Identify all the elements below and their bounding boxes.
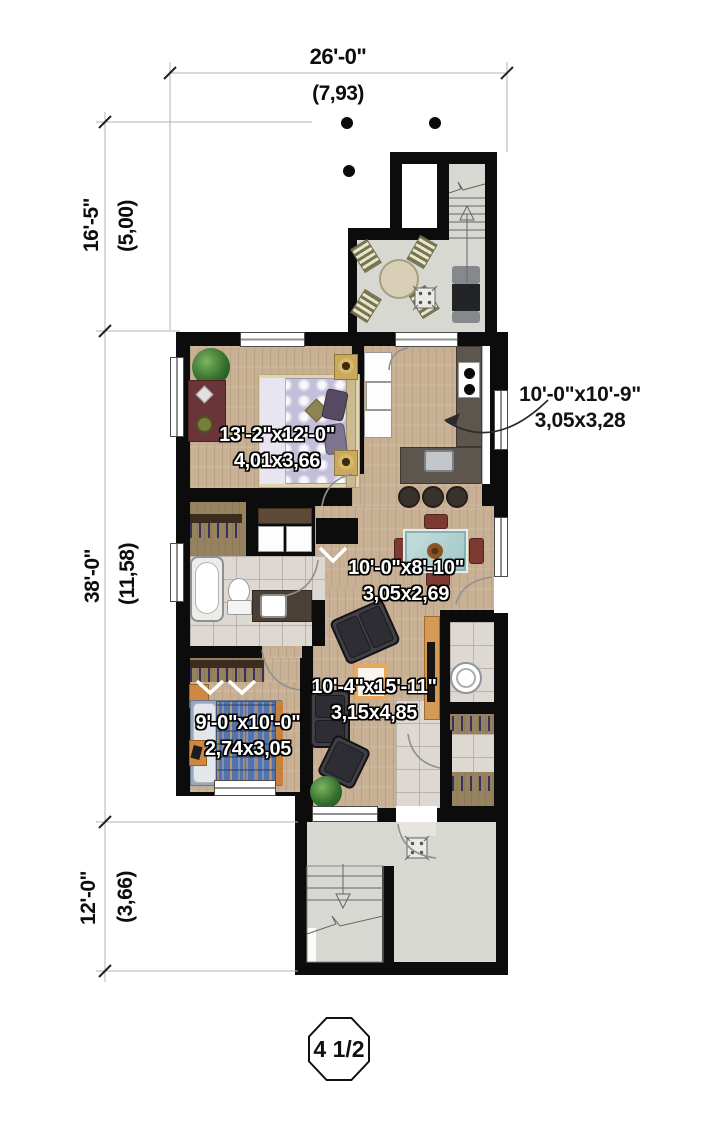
bedroom2-floor [264, 658, 300, 682]
room-size-metric: 4,01x3,66 [219, 448, 335, 474]
toilet-tank [227, 600, 252, 615]
front-door [396, 806, 437, 822]
window [395, 332, 458, 347]
door-landing [398, 822, 436, 836]
linen-counter [258, 508, 312, 524]
window [214, 780, 276, 796]
room-size-imperial: 10'-4"x15'-11" [311, 674, 436, 700]
room-label-kitchen: 10'-0"x10'-9" 3,05x3,28 [519, 382, 641, 434]
interior-wall [312, 600, 325, 646]
kitchen-cabinet [364, 410, 392, 438]
dining-chair [424, 514, 448, 529]
desk-plate [196, 416, 213, 433]
bbq-grill [452, 311, 480, 323]
room-label-living: 10'-4"x15'-11" 3,15x4,85 [311, 674, 436, 726]
bar-stool [422, 486, 444, 508]
room-size-metric: 3,05x2,69 [348, 581, 464, 607]
dim-left-middle-imperial: 38'-0" [81, 549, 105, 603]
bbq-grill [452, 284, 480, 311]
interior-wall [246, 502, 258, 556]
wall [390, 152, 402, 240]
deck-wall [295, 962, 508, 975]
window [170, 357, 184, 437]
kitchen-cabinet [366, 382, 392, 410]
room-size-metric: 3,05x3,28 [519, 408, 641, 434]
wall [485, 152, 497, 333]
unit-count-badge: 4 1/2 [313, 1036, 364, 1063]
floor-plan-canvas: 26'-0" (7,93) 16'-5" (5,00) 38'-0" (11,5… [0, 0, 720, 1131]
room-size-imperial: 10'-0"x8'-10" [348, 555, 464, 581]
burner [464, 368, 475, 379]
side-door [494, 577, 508, 613]
room-label-dining: 10'-0"x8'-10" 3,05x2,69 [348, 555, 464, 607]
porch-post-dot [429, 117, 441, 129]
dining-chair [469, 538, 484, 564]
window [240, 332, 305, 347]
bbq-grill [452, 266, 480, 284]
closet-rod [190, 660, 264, 668]
lamp [338, 454, 354, 470]
interior-wall [176, 646, 262, 658]
closet-hangers [452, 776, 492, 791]
bar-stool [446, 486, 468, 508]
burner [464, 384, 475, 395]
room-size-metric: 3,15x4,85 [311, 700, 436, 726]
wall [348, 228, 357, 333]
linen-cabinet [286, 526, 312, 552]
front-deck-floor [307, 822, 496, 962]
window [170, 543, 184, 602]
window [494, 517, 508, 577]
wall [390, 152, 497, 164]
interior-wall [302, 646, 313, 658]
dim-left-bottom-imperial: 12'-0" [77, 871, 101, 925]
dim-left-top-metric: (5,00) [115, 200, 139, 252]
window [494, 390, 508, 450]
door-opening [312, 556, 325, 600]
interior-wall [190, 488, 352, 502]
closet-hangers [190, 668, 264, 682]
washer-drum [456, 668, 476, 688]
counter-edge [482, 346, 490, 484]
interior-wall [440, 730, 452, 822]
room-size-metric: 2,74x3,05 [196, 736, 301, 762]
room-size-imperial: 13'-2"x12'-0" [219, 422, 335, 448]
deck-wall [295, 822, 307, 975]
fridge [364, 352, 392, 382]
closet-hangers [190, 523, 242, 538]
bar-stool [398, 486, 420, 508]
entry-hall-floor [450, 734, 494, 772]
stair-wall [382, 866, 394, 962]
room-size-imperial: 9'-0"x10'-0" [196, 710, 301, 736]
interior-wall [316, 518, 358, 544]
room-size-imperial: 10'-0"x10'-9" [519, 382, 641, 408]
deck-wall [496, 822, 508, 975]
closet-hangers [452, 716, 492, 731]
dim-top-imperial: 26'-0" [310, 44, 367, 70]
dim-left-bottom-metric: (3,66) [114, 871, 138, 923]
closet-rod [190, 514, 242, 523]
porch-post-dot [341, 117, 353, 129]
bathtub-inner [195, 562, 219, 614]
room-label-master-bedroom: 13'-2"x12'-0" 4,01x3,66 [219, 422, 335, 474]
dim-left-middle-metric: (11,58) [116, 543, 140, 605]
shower-unit [258, 526, 284, 552]
lamp [338, 358, 354, 374]
interior-wall [440, 702, 494, 714]
porch-post-dot [343, 165, 355, 177]
dim-top-metric: (7,93) [312, 82, 364, 106]
stair-landing [307, 928, 316, 962]
plant [310, 776, 342, 808]
patio-table [379, 259, 419, 299]
dim-left-top-imperial: 16'-5" [80, 198, 104, 252]
vanity-sink [260, 594, 287, 618]
window [312, 806, 378, 822]
room-label-bedroom2: 9'-0"x10'-0" 2,74x3,05 [196, 710, 301, 762]
door-opening [262, 646, 302, 658]
kitchen-sink [424, 450, 454, 472]
